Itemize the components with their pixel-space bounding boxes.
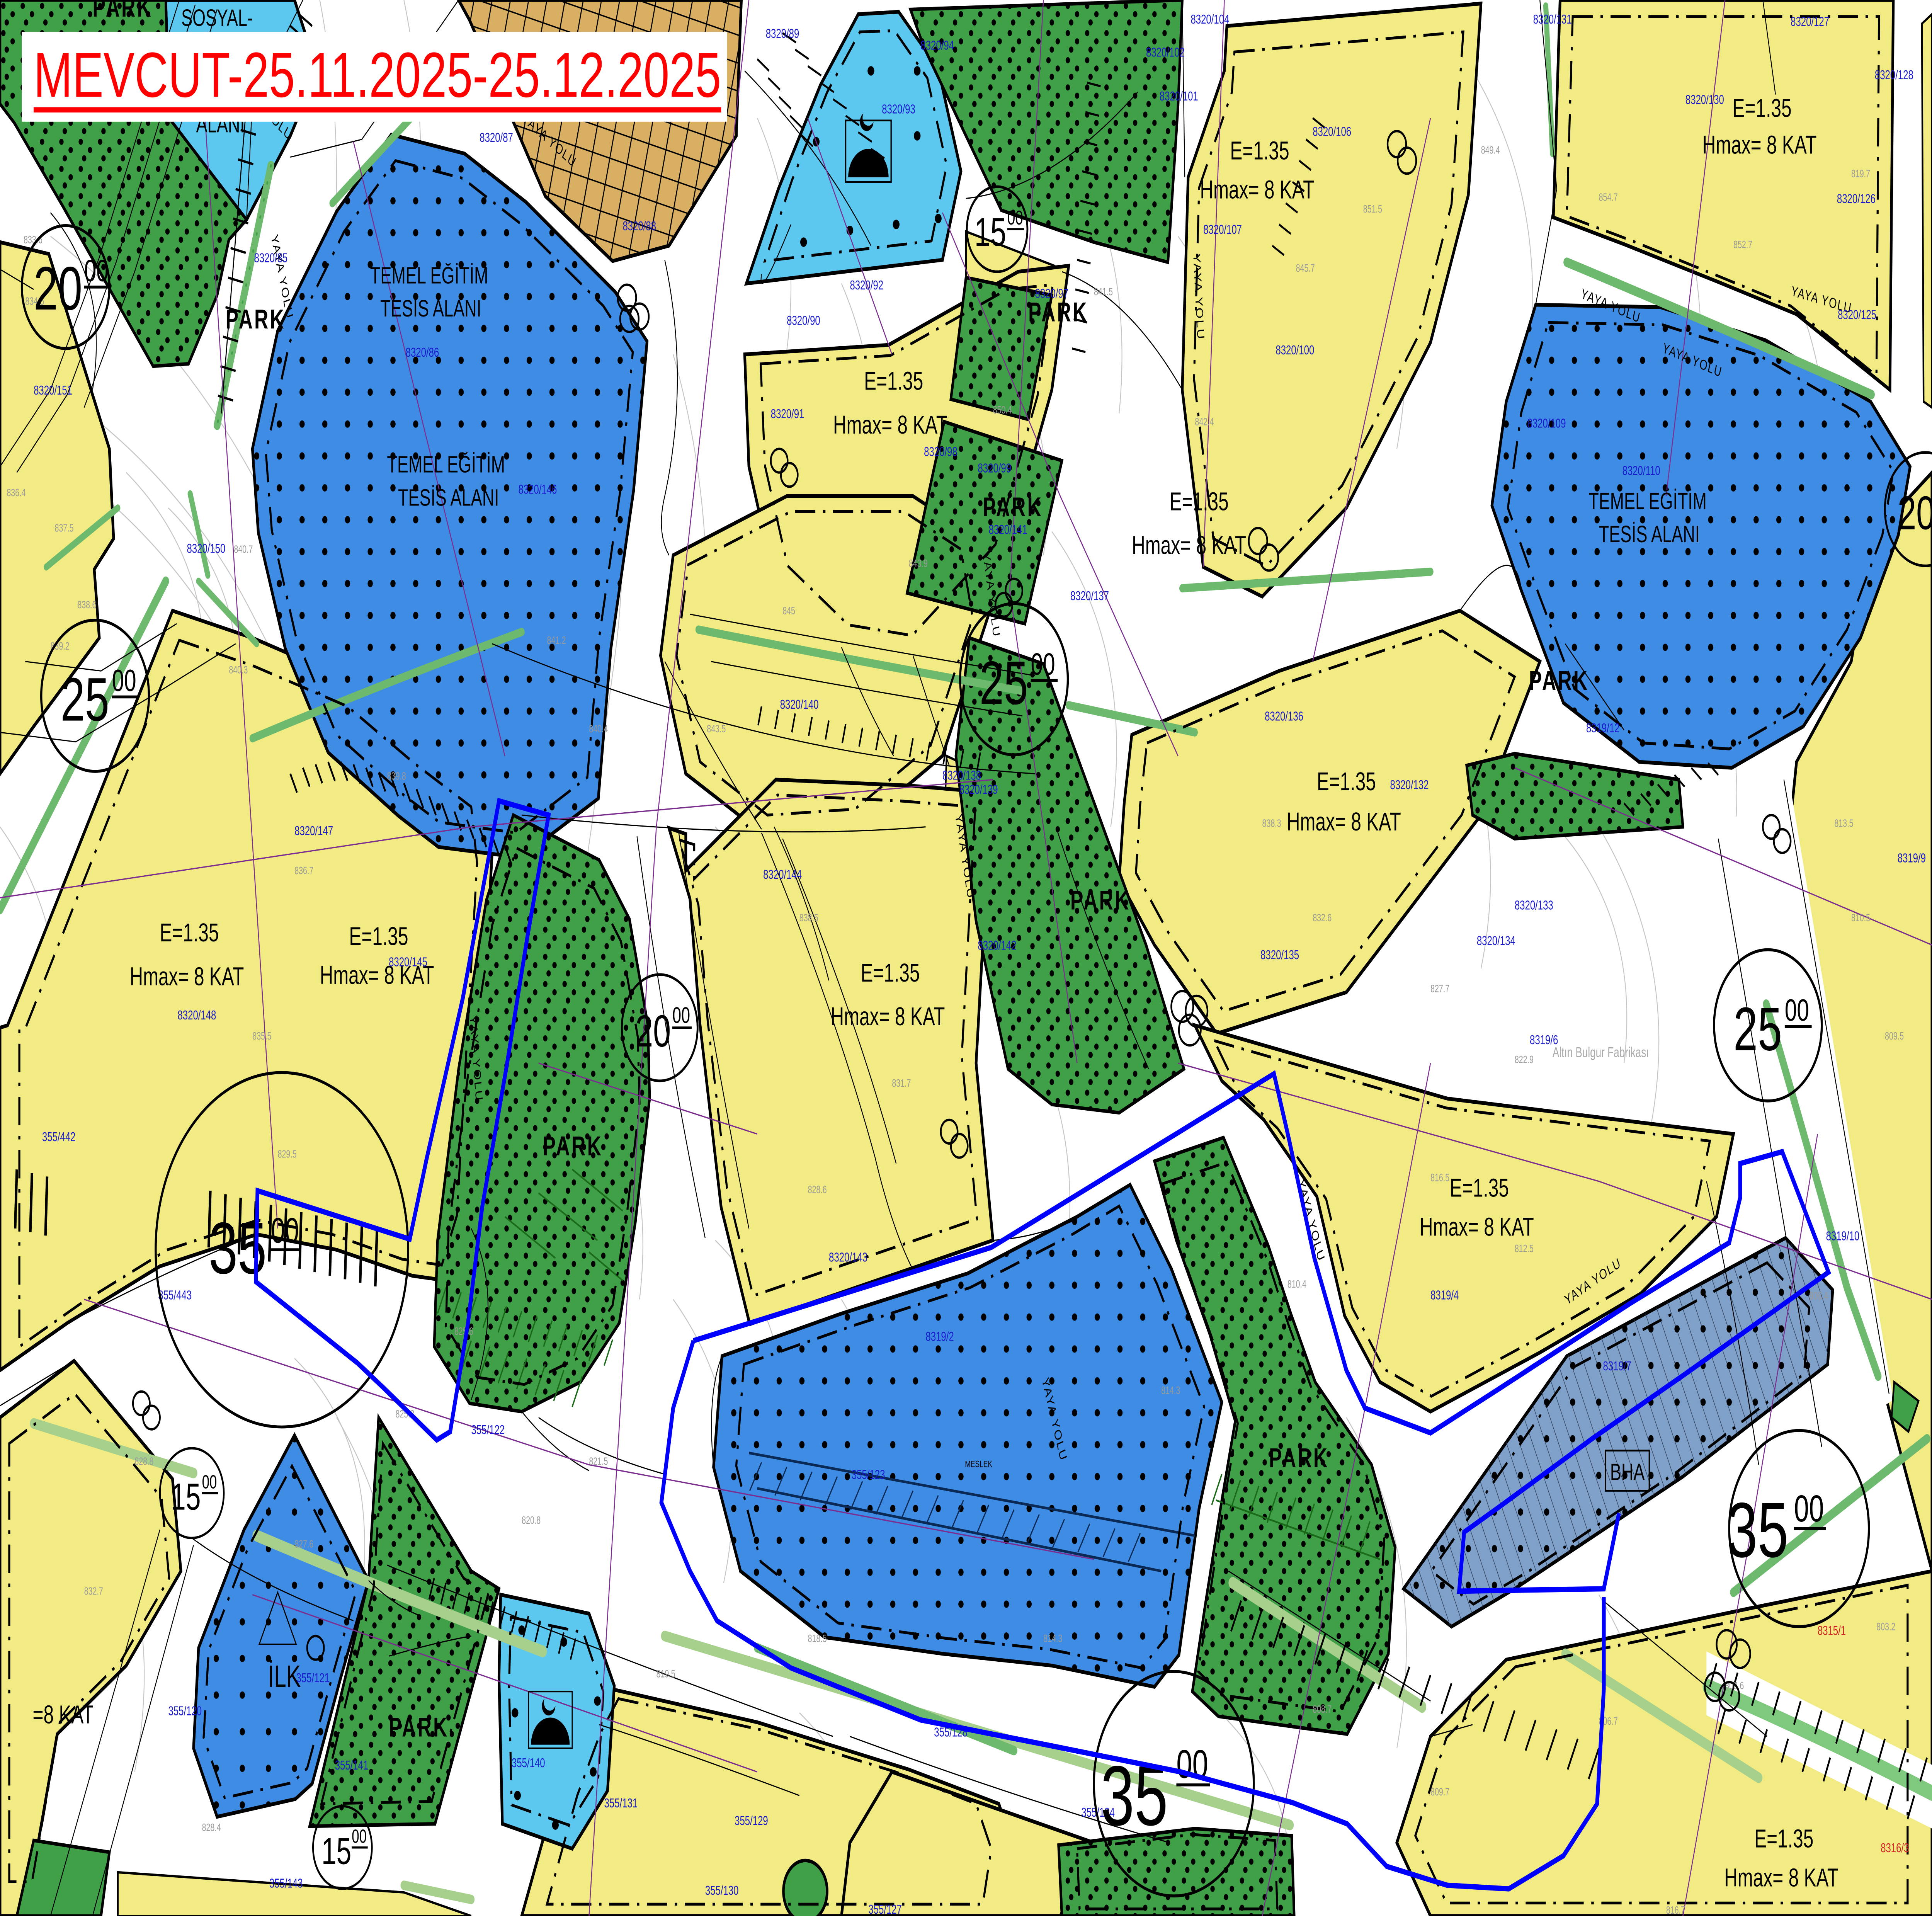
svg-text:8320/144: 8320/144 bbox=[763, 868, 802, 882]
svg-text:8320/137: 8320/137 bbox=[1070, 589, 1109, 603]
svg-text:355/121: 355/121 bbox=[296, 1671, 330, 1685]
svg-text:25: 25 bbox=[1733, 995, 1782, 1063]
svg-text:00: 00 bbox=[271, 1211, 299, 1251]
svg-text:8320/150: 8320/150 bbox=[187, 542, 225, 556]
svg-text:810.5: 810.5 bbox=[1851, 912, 1870, 924]
svg-text:Hmax= 8 KAT: Hmax= 8 KAT bbox=[833, 410, 947, 439]
svg-text:E=1.35: E=1.35 bbox=[861, 958, 920, 987]
svg-text:828.6: 828.6 bbox=[808, 1184, 827, 1196]
svg-text:E=1.35: E=1.35 bbox=[1733, 94, 1792, 123]
svg-text:PARK: PARK bbox=[1070, 885, 1131, 915]
svg-text:TEMEL EĞİTİM: TEMEL EĞİTİM bbox=[1588, 488, 1707, 514]
svg-text:8320/86: 8320/86 bbox=[406, 345, 439, 360]
svg-text:PARK: PARK bbox=[1028, 297, 1088, 327]
svg-text:E=1.35: E=1.35 bbox=[1230, 136, 1289, 165]
svg-text:355/141: 355/141 bbox=[335, 1758, 369, 1773]
svg-text:8320/126: 8320/126 bbox=[1837, 192, 1876, 206]
svg-text:00: 00 bbox=[84, 254, 109, 288]
svg-text:8320/90: 8320/90 bbox=[787, 314, 820, 328]
svg-text:816.5: 816.5 bbox=[1430, 1172, 1449, 1184]
svg-text:8320/87: 8320/87 bbox=[480, 131, 513, 145]
svg-text:806.4: 806.4 bbox=[1809, 1290, 1828, 1302]
svg-text:8320/109: 8320/109 bbox=[1527, 417, 1566, 431]
svg-text:819.7: 819.7 bbox=[1851, 168, 1870, 180]
svg-text:PARK: PARK bbox=[1529, 665, 1589, 696]
svg-text:355/143: 355/143 bbox=[269, 1877, 303, 1891]
svg-text:8320/101: 8320/101 bbox=[1160, 89, 1198, 104]
svg-text:TESİS ALANI: TESİS ALANI bbox=[398, 485, 499, 511]
svg-text:E=1.35: E=1.35 bbox=[1754, 1824, 1813, 1853]
svg-text:842.4: 842.4 bbox=[1195, 416, 1214, 428]
svg-text:8315/1: 8315/1 bbox=[1818, 1624, 1846, 1638]
svg-text:E=1.35: E=1.35 bbox=[1450, 1174, 1509, 1203]
svg-text:851.5: 851.5 bbox=[1363, 203, 1382, 215]
svg-text:355/131: 355/131 bbox=[604, 1796, 638, 1811]
svg-text:8320/136: 8320/136 bbox=[1265, 710, 1303, 724]
svg-text:E=1.35: E=1.35 bbox=[160, 918, 219, 947]
svg-text:8320/145: 8320/145 bbox=[389, 955, 427, 970]
svg-text:PARK: PARK bbox=[1269, 1443, 1329, 1473]
svg-text:8320/85: 8320/85 bbox=[254, 251, 288, 265]
svg-text:Altın Bulgur Fabrikası: Altın Bulgur Fabrikası bbox=[1553, 1044, 1649, 1060]
svg-text:8320/142: 8320/142 bbox=[978, 939, 1016, 953]
svg-text:E=1.35: E=1.35 bbox=[349, 922, 408, 951]
svg-text:Hmax= 8 KAT: Hmax= 8 KAT bbox=[1200, 175, 1315, 204]
svg-text:355/120: 355/120 bbox=[168, 1704, 202, 1719]
svg-text:E=1.35: E=1.35 bbox=[864, 367, 923, 396]
svg-text:00: 00 bbox=[352, 1826, 367, 1847]
svg-text:PARK: PARK bbox=[983, 492, 1043, 522]
svg-text:821.5: 821.5 bbox=[589, 1455, 608, 1467]
svg-text:Hmax= 8 KAT: Hmax= 8 KAT bbox=[1702, 130, 1817, 159]
svg-text:836.4: 836.4 bbox=[7, 487, 26, 499]
svg-text:8320/99: 8320/99 bbox=[978, 461, 1011, 476]
svg-text:00: 00 bbox=[672, 1002, 690, 1028]
svg-text:8320/88: 8320/88 bbox=[622, 219, 656, 233]
svg-text:840.4: 840.4 bbox=[589, 723, 608, 735]
svg-text:Hmax= 8 KAT: Hmax= 8 KAT bbox=[1724, 1863, 1838, 1892]
svg-text:809.5: 809.5 bbox=[1885, 1030, 1904, 1042]
svg-text:8316/3: 8316/3 bbox=[1881, 1841, 1909, 1855]
svg-text:852.7: 852.7 bbox=[1733, 239, 1752, 251]
svg-text:8320/97: 8320/97 bbox=[1035, 286, 1069, 301]
svg-text:20: 20 bbox=[1898, 487, 1932, 539]
svg-text:838.6: 838.6 bbox=[77, 599, 96, 611]
svg-text:35: 35 bbox=[1727, 1487, 1789, 1574]
svg-text:25: 25 bbox=[980, 649, 1028, 717]
svg-text:8320/100: 8320/100 bbox=[1276, 343, 1314, 357]
svg-text:827.6: 827.6 bbox=[294, 1538, 313, 1550]
svg-text:8320/139: 8320/139 bbox=[959, 783, 998, 797]
svg-text:808.7: 808.7 bbox=[1313, 1703, 1332, 1715]
svg-text:825.6: 825.6 bbox=[454, 1326, 473, 1337]
svg-text:839.8: 839.8 bbox=[387, 770, 406, 782]
svg-text:8320/134: 8320/134 bbox=[1477, 934, 1515, 948]
svg-text:8320/107: 8320/107 bbox=[1203, 223, 1242, 237]
svg-text:TESİS ALANI: TESİS ALANI bbox=[380, 296, 481, 322]
svg-text:355/140: 355/140 bbox=[512, 1756, 545, 1770]
svg-text:00: 00 bbox=[1794, 1487, 1824, 1529]
svg-text:8319/10: 8319/10 bbox=[1826, 1229, 1860, 1244]
svg-text:8320/135: 8320/135 bbox=[1260, 948, 1299, 962]
svg-text:8320/146: 8320/146 bbox=[518, 483, 557, 497]
svg-text:TEMEL EĞİTİM: TEMEL EĞİTİM bbox=[370, 262, 488, 289]
svg-text:8319/12: 8319/12 bbox=[1586, 721, 1620, 735]
svg-text:=8 KAT: =8 KAT bbox=[33, 1700, 94, 1729]
svg-text:E=1.35: E=1.35 bbox=[1317, 767, 1376, 796]
svg-text:15: 15 bbox=[975, 210, 1006, 255]
svg-text:Hmax= 8 KAT: Hmax= 8 KAT bbox=[831, 1002, 945, 1031]
svg-text:816.7: 816.7 bbox=[1666, 1904, 1685, 1916]
svg-text:845.7: 845.7 bbox=[1296, 262, 1315, 274]
svg-text:355/443: 355/443 bbox=[158, 1288, 192, 1303]
svg-text:838.3: 838.3 bbox=[1262, 818, 1281, 830]
svg-text:810.4: 810.4 bbox=[1287, 1278, 1306, 1290]
svg-text:8320/128: 8320/128 bbox=[1875, 68, 1913, 82]
svg-text:819.5: 819.5 bbox=[656, 1668, 675, 1680]
svg-text:355/129: 355/129 bbox=[735, 1814, 768, 1828]
svg-text:843.9: 843.9 bbox=[909, 558, 928, 570]
svg-text:8319/4: 8319/4 bbox=[1430, 1288, 1459, 1303]
svg-text:20: 20 bbox=[635, 1007, 671, 1057]
svg-text:MEVCUT-25.11.2025-25.12.2025: MEVCUT-25.11.2025-25.12.2025 bbox=[34, 39, 721, 111]
svg-text:00: 00 bbox=[1007, 206, 1023, 229]
svg-text:8320/92: 8320/92 bbox=[850, 278, 883, 293]
svg-text:BHA: BHA bbox=[1610, 1459, 1645, 1485]
svg-text:820.8: 820.8 bbox=[522, 1514, 541, 1526]
svg-text:8320/93: 8320/93 bbox=[882, 102, 915, 117]
svg-text:8320/127: 8320/127 bbox=[1791, 15, 1829, 29]
svg-text:8320/104: 8320/104 bbox=[1190, 12, 1229, 27]
svg-text:8320/147: 8320/147 bbox=[294, 824, 333, 838]
svg-text:828.8: 828.8 bbox=[134, 1455, 153, 1467]
svg-text:SOSYAL-: SOSYAL- bbox=[181, 5, 253, 31]
svg-text:TESİS ALANI: TESİS ALANI bbox=[1599, 521, 1700, 548]
svg-text:8320/125: 8320/125 bbox=[1838, 308, 1876, 322]
svg-text:15: 15 bbox=[321, 1830, 352, 1872]
svg-text:837.5: 837.5 bbox=[55, 522, 74, 534]
svg-text:836.7: 836.7 bbox=[294, 865, 313, 877]
svg-text:8320/98: 8320/98 bbox=[924, 445, 957, 459]
svg-text:8320/143: 8320/143 bbox=[829, 1251, 867, 1265]
svg-text:8320/110: 8320/110 bbox=[1622, 464, 1660, 478]
svg-text:8320/133: 8320/133 bbox=[1515, 898, 1553, 913]
svg-text:Hmax= 8 KAT: Hmax= 8 KAT bbox=[129, 962, 244, 991]
svg-text:841.5: 841.5 bbox=[1094, 286, 1113, 298]
svg-text:813.5: 813.5 bbox=[1834, 818, 1853, 830]
svg-text:8320/89: 8320/89 bbox=[766, 27, 799, 41]
svg-text:8320/106: 8320/106 bbox=[1313, 125, 1351, 139]
svg-text:8320/130: 8320/130 bbox=[1685, 93, 1724, 107]
svg-text:8320/140: 8320/140 bbox=[780, 698, 819, 712]
svg-text:00: 00 bbox=[112, 664, 136, 698]
svg-text:854.7: 854.7 bbox=[1599, 191, 1618, 203]
svg-text:814.3: 814.3 bbox=[1161, 1385, 1180, 1397]
svg-text:840.7: 840.7 bbox=[234, 543, 253, 555]
svg-text:849.4: 849.4 bbox=[1481, 144, 1500, 156]
svg-text:8319/7: 8319/7 bbox=[1603, 1359, 1631, 1373]
svg-text:25: 25 bbox=[61, 665, 109, 734]
svg-text:00: 00 bbox=[1785, 993, 1809, 1028]
svg-text:835.5: 835.5 bbox=[252, 1030, 271, 1042]
svg-text:8320/151: 8320/151 bbox=[34, 383, 72, 398]
svg-text:355/127: 355/127 bbox=[868, 1902, 902, 1916]
svg-text:E=1.35: E=1.35 bbox=[1170, 487, 1229, 516]
svg-text:Hmax= 8 KAT: Hmax= 8 KAT bbox=[1420, 1212, 1534, 1241]
svg-text:829.5: 829.5 bbox=[278, 1148, 297, 1160]
svg-text:838.5: 838.5 bbox=[799, 912, 818, 924]
svg-text:MESLEK: MESLEK bbox=[965, 1459, 992, 1469]
svg-text:841.2: 841.2 bbox=[547, 635, 566, 647]
svg-text:8319/9: 8319/9 bbox=[1898, 851, 1926, 866]
svg-text:814.3: 814.3 bbox=[1043, 1633, 1062, 1645]
svg-text:8320/102: 8320/102 bbox=[1146, 46, 1185, 60]
svg-text:840.3: 840.3 bbox=[229, 664, 248, 676]
svg-text:PARK: PARK bbox=[93, 0, 153, 22]
svg-text:828.4: 828.4 bbox=[202, 1822, 221, 1834]
svg-text:832.6: 832.6 bbox=[1313, 912, 1332, 924]
svg-text:8320/131: 8320/131 bbox=[1533, 12, 1572, 27]
svg-text:355/123: 355/123 bbox=[852, 1468, 885, 1482]
svg-text:845: 845 bbox=[782, 605, 795, 617]
svg-text:818.5: 818.5 bbox=[808, 1633, 827, 1645]
svg-text:TEMEL EĞİTİM: TEMEL EĞİTİM bbox=[387, 452, 505, 478]
svg-text:355/442: 355/442 bbox=[42, 1130, 76, 1144]
svg-text:822.9: 822.9 bbox=[1515, 1054, 1534, 1066]
svg-text:843.5: 843.5 bbox=[707, 723, 726, 735]
svg-text:8320/138: 8320/138 bbox=[942, 769, 981, 783]
svg-text:Hmax= 8 KAT: Hmax= 8 KAT bbox=[1287, 807, 1401, 836]
svg-text:8320/141: 8320/141 bbox=[989, 523, 1027, 537]
svg-text:832.7: 832.7 bbox=[84, 1585, 103, 1597]
svg-text:827.7: 827.7 bbox=[1430, 983, 1449, 995]
svg-text:803.2: 803.2 bbox=[1876, 1621, 1895, 1633]
svg-text:PARK: PARK bbox=[543, 1131, 603, 1161]
svg-text:8320/91: 8320/91 bbox=[771, 407, 804, 421]
svg-text:PARK: PARK bbox=[226, 304, 286, 334]
svg-text:8320/132: 8320/132 bbox=[1390, 778, 1429, 792]
svg-text:831.7: 831.7 bbox=[892, 1077, 911, 1089]
svg-text:355/122: 355/122 bbox=[471, 1423, 505, 1437]
svg-text:850.4: 850.4 bbox=[993, 404, 1012, 416]
svg-text:812.5: 812.5 bbox=[1515, 1243, 1534, 1255]
svg-text:PARK: PARK bbox=[389, 1712, 449, 1742]
svg-text:00: 00 bbox=[202, 1472, 217, 1492]
svg-text:15: 15 bbox=[171, 1475, 201, 1518]
svg-text:355/130: 355/130 bbox=[705, 1884, 739, 1898]
svg-text:809.7: 809.7 bbox=[1430, 1786, 1449, 1798]
svg-text:20: 20 bbox=[34, 254, 82, 323]
svg-text:8319/2: 8319/2 bbox=[925, 1330, 954, 1344]
svg-text:8320/148: 8320/148 bbox=[177, 1008, 216, 1023]
svg-text:Hmax= 8 KAT: Hmax= 8 KAT bbox=[1132, 531, 1246, 560]
svg-text:00: 00 bbox=[1031, 647, 1055, 681]
svg-text:8320/94: 8320/94 bbox=[920, 39, 954, 53]
